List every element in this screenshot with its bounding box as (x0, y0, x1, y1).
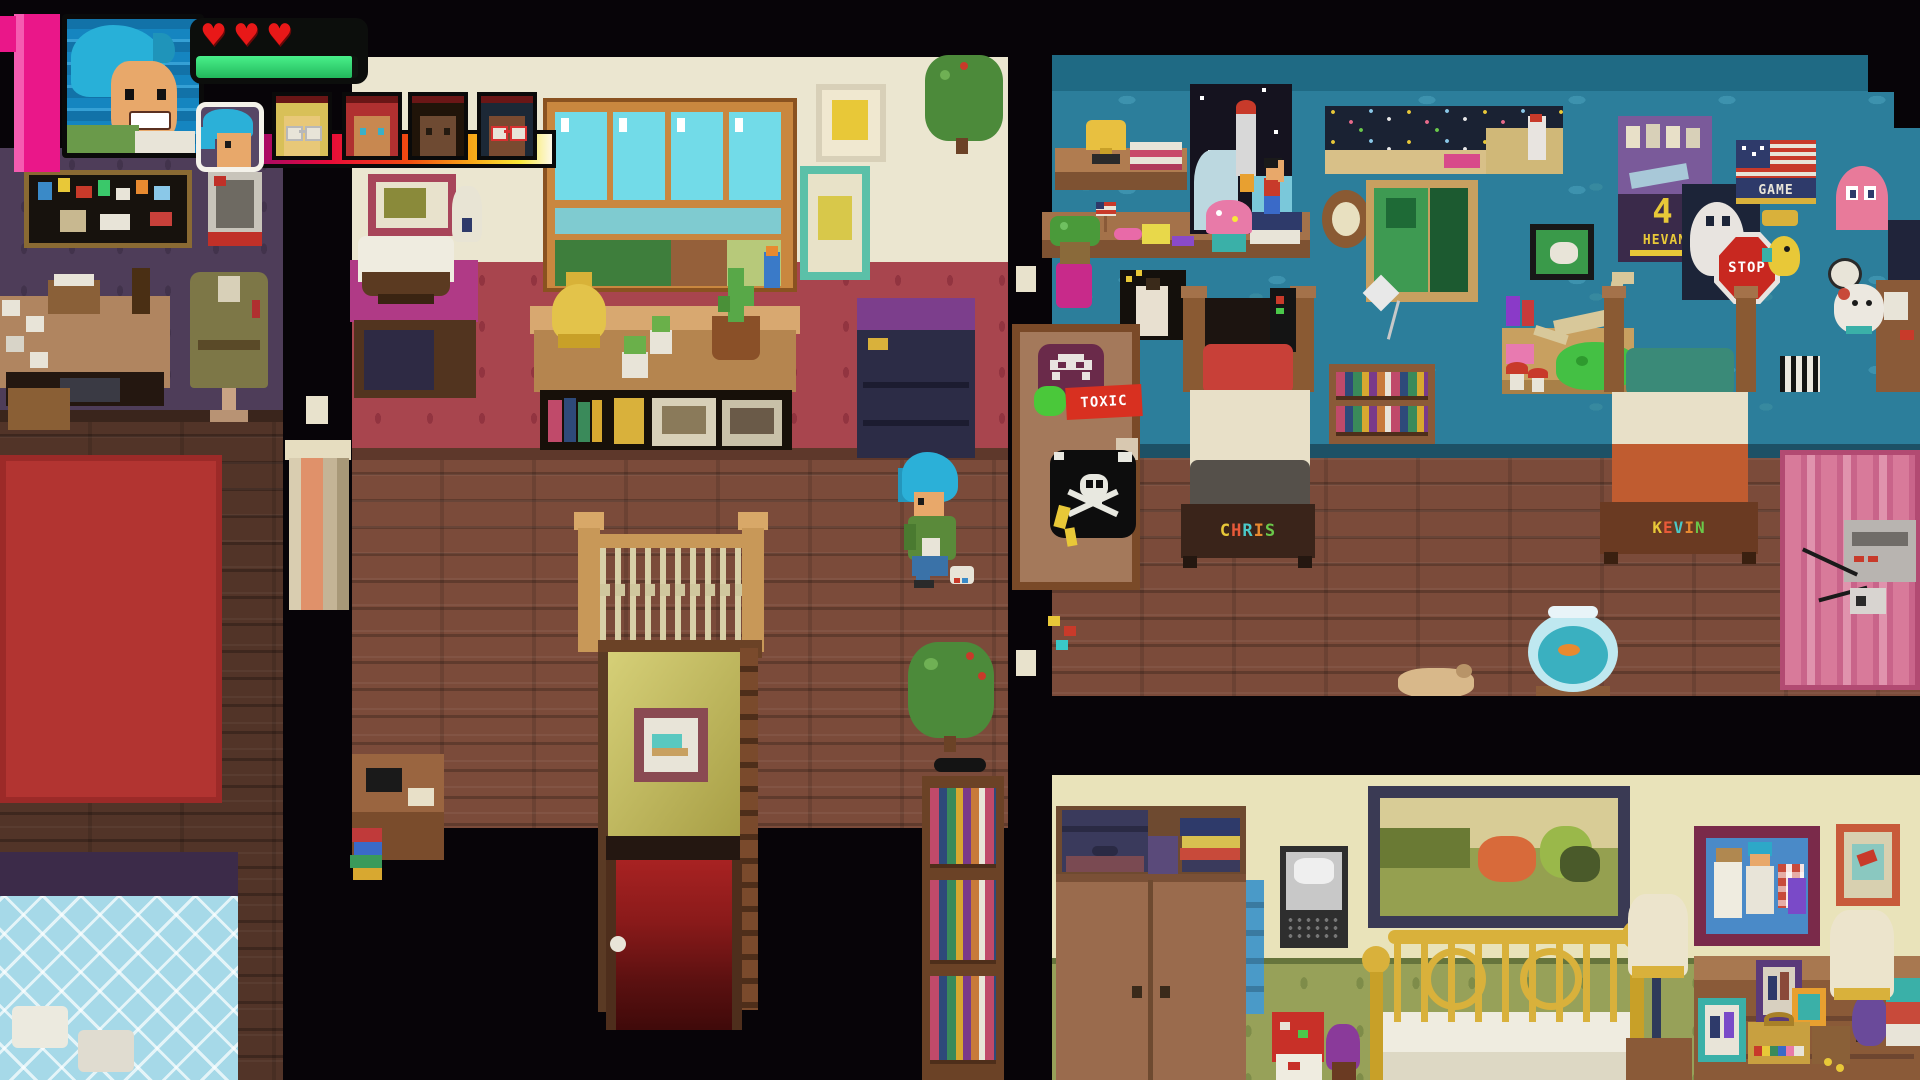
game-viewport: 4HEVANSTOPGAMECHRISKEVINTOXIC ♥♥♥ (0, 0, 1920, 1080)
portrait-eye (157, 89, 166, 100)
face-part (378, 128, 384, 135)
face-part (305, 126, 322, 141)
portrait-eye (125, 89, 134, 100)
face-part (491, 126, 508, 141)
face-part (225, 141, 231, 148)
portrait-jacket (67, 125, 139, 153)
party-member-charlie[interactable] (342, 92, 402, 160)
face-part (286, 126, 303, 141)
face-part (217, 133, 251, 167)
portrait-shirt (135, 131, 195, 153)
party-member-joe[interactable] (408, 92, 468, 160)
heart-icon: ♥ (233, 18, 260, 53)
face-part (510, 126, 527, 141)
face-part (360, 128, 366, 135)
hud-layer: ♥♥♥ (0, 0, 1920, 1080)
health-bar (196, 56, 358, 78)
party-member-kevin[interactable] (477, 92, 537, 160)
face-part (346, 96, 398, 103)
face-part (299, 130, 305, 133)
party-member-chris[interactable] (196, 102, 264, 172)
face-part (426, 128, 432, 135)
face-part (420, 116, 456, 156)
portrait-hair-spike (153, 33, 175, 63)
party-member-matt[interactable] (272, 92, 332, 160)
heart-icon: ♥ (266, 18, 293, 53)
player-portrait (62, 14, 204, 158)
face-part (354, 116, 390, 156)
face-part (444, 128, 450, 135)
status-panel: ♥♥♥ (190, 18, 368, 84)
face-part (276, 96, 328, 103)
heart-icon: ♥ (200, 18, 227, 53)
face-part (412, 96, 464, 103)
health-bar-fill (196, 56, 352, 78)
face-part (481, 96, 533, 103)
face-part (504, 130, 510, 133)
face-part (201, 127, 215, 149)
